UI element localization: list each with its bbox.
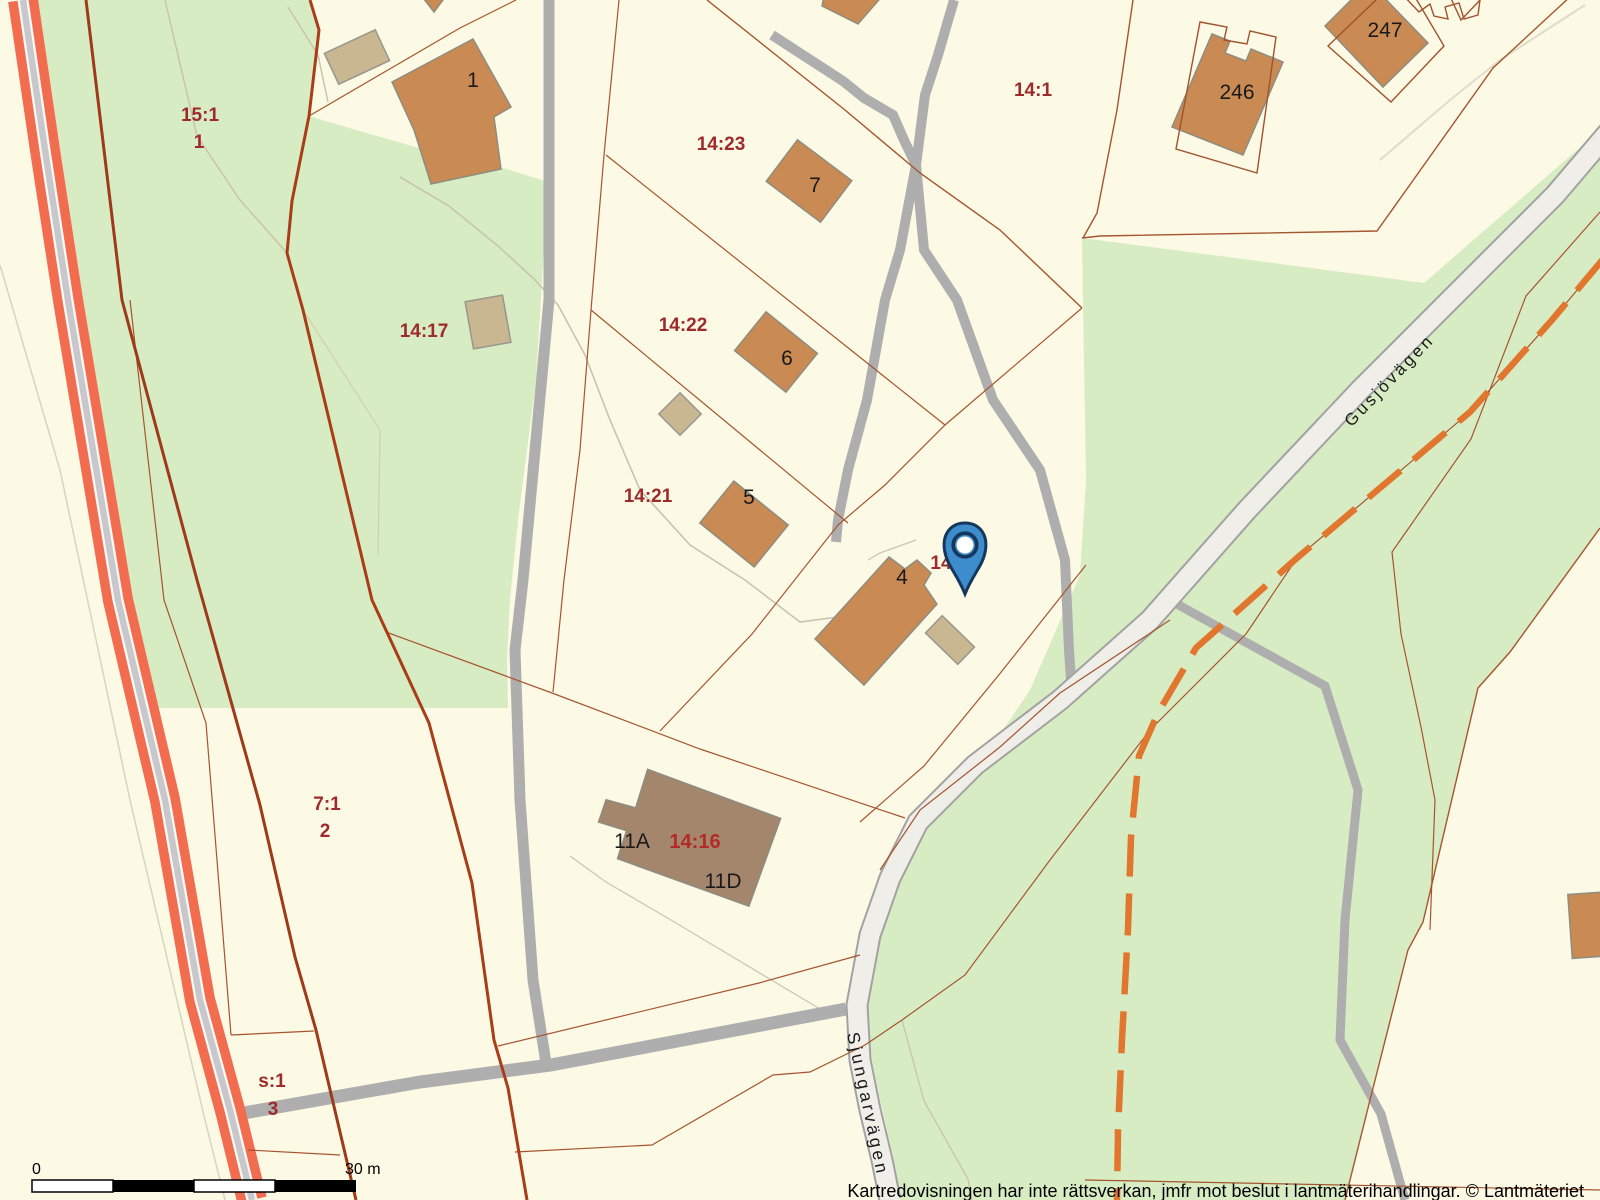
svg-text:14:21: 14:21 <box>624 486 673 507</box>
svg-text:247: 247 <box>1367 19 1402 42</box>
svg-text:30 m: 30 m <box>345 1161 381 1178</box>
svg-text:14:16: 14:16 <box>669 831 720 853</box>
svg-text:14:1: 14:1 <box>1014 80 1052 101</box>
svg-text:7:1: 7:1 <box>313 794 341 815</box>
svg-text:3: 3 <box>268 1099 279 1120</box>
svg-text:6: 6 <box>781 347 793 370</box>
svg-text:4: 4 <box>896 566 908 589</box>
svg-text:7: 7 <box>809 174 821 197</box>
svg-text:Kartredovisningen har inte rät: Kartredovisningen har inte rättsverkan, … <box>847 1181 1584 1200</box>
svg-text:2: 2 <box>320 821 331 842</box>
svg-text:14:23: 14:23 <box>697 134 746 155</box>
svg-text:11D: 11D <box>705 870 742 893</box>
svg-text:14:17: 14:17 <box>400 321 449 342</box>
svg-text:1: 1 <box>194 132 205 153</box>
svg-text:15:1: 15:1 <box>181 105 219 126</box>
svg-text:s:1: s:1 <box>258 1071 286 1092</box>
svg-text:5: 5 <box>743 486 755 509</box>
svg-text:246: 246 <box>1219 81 1254 104</box>
svg-text:0: 0 <box>32 1161 41 1178</box>
svg-text:11A: 11A <box>614 830 650 853</box>
svg-text:1: 1 <box>467 69 479 92</box>
svg-text:14:22: 14:22 <box>659 315 708 336</box>
